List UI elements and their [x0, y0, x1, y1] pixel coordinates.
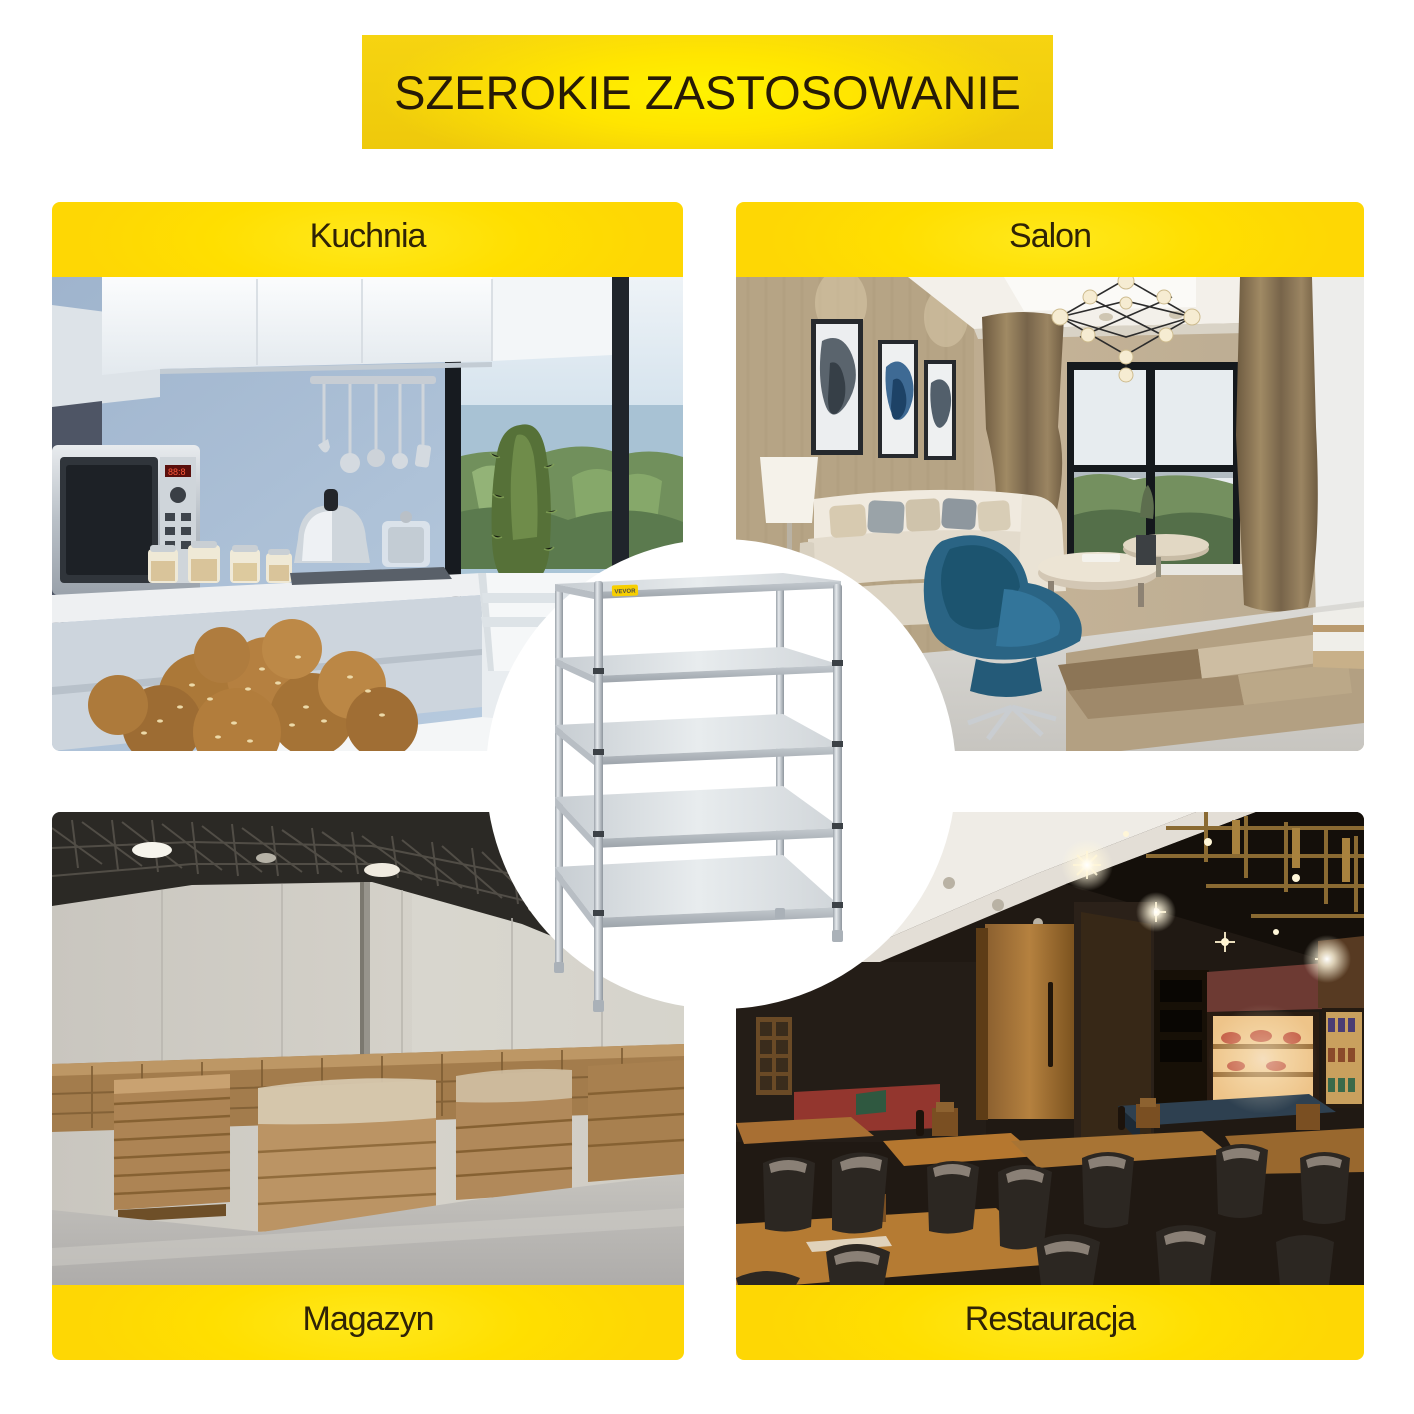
svg-text:VEVOR: VEVOR	[614, 589, 636, 596]
svg-text:88:8: 88:8	[168, 467, 186, 477]
